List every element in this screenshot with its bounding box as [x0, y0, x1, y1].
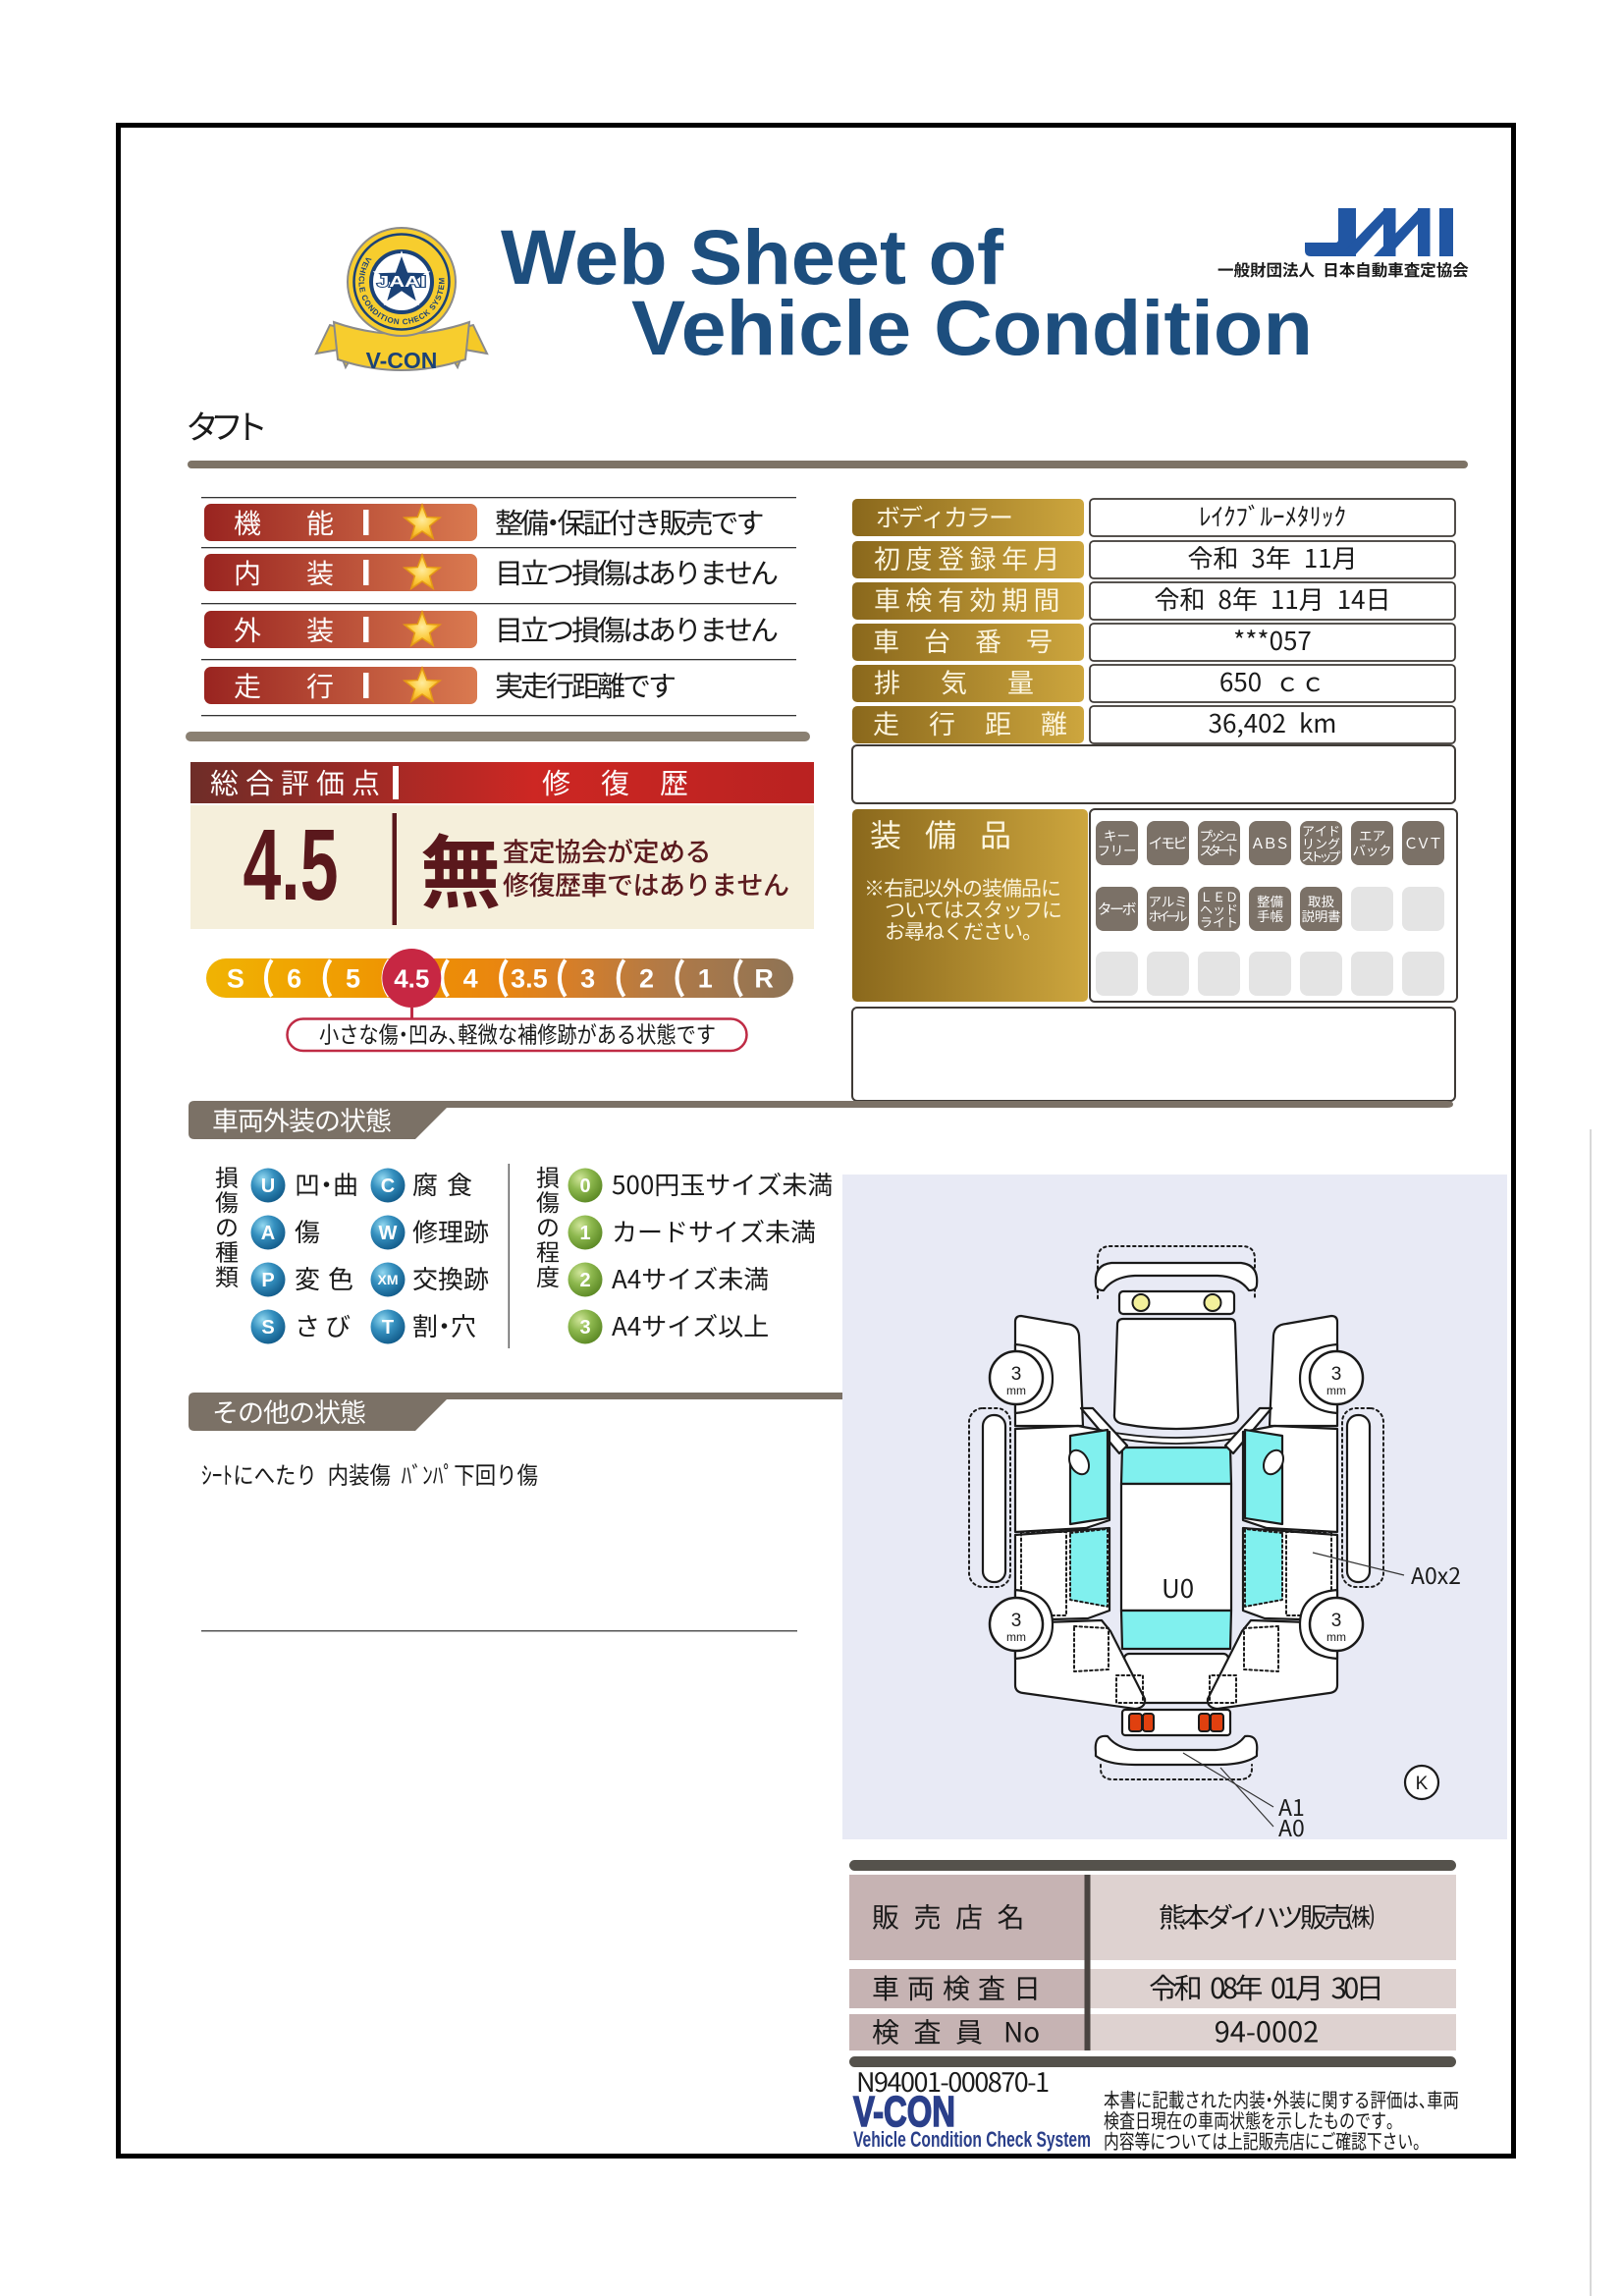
svg-text:1: 1 [698, 964, 713, 994]
svg-text:mm: mm [1006, 1630, 1026, 1644]
svg-text:2: 2 [579, 1270, 590, 1291]
svg-text:mm: mm [1326, 1384, 1346, 1397]
svg-text:R: R [754, 964, 774, 994]
svg-text:mm: mm [1006, 1384, 1026, 1397]
svg-text:Vehicle Condition: Vehicle Condition [631, 284, 1313, 371]
svg-text:3: 3 [580, 964, 595, 994]
svg-text:C: C [381, 1175, 395, 1197]
svg-text:P: P [261, 1270, 274, 1291]
svg-text:XM: XM [378, 1272, 399, 1287]
svg-text:A: A [261, 1223, 275, 1244]
svg-text:3: 3 [1011, 1364, 1022, 1385]
svg-text:S: S [261, 1317, 274, 1339]
svg-text:6: 6 [287, 964, 301, 994]
svg-text:4.5: 4.5 [394, 964, 429, 994]
svg-text:Vehicle Condition Check System: Vehicle Condition Check System [853, 2127, 1091, 2152]
svg-text:0: 0 [579, 1175, 590, 1197]
svg-text:W: W [379, 1223, 398, 1244]
svg-text:mm: mm [1326, 1630, 1346, 1644]
svg-text:V-CON: V-CON [366, 348, 438, 373]
svg-text:3: 3 [1331, 1364, 1342, 1385]
svg-text:T: T [382, 1317, 394, 1339]
svg-text:JAAI: JAAI [377, 274, 426, 291]
svg-text:K: K [1416, 1774, 1429, 1794]
svg-text:4: 4 [463, 964, 478, 994]
svg-text:1: 1 [579, 1223, 590, 1244]
svg-text:3: 3 [1011, 1611, 1022, 1631]
svg-text:3: 3 [1331, 1611, 1342, 1631]
svg-text:2: 2 [639, 964, 654, 994]
svg-text:3.5: 3.5 [511, 964, 548, 994]
svg-text:4.5: 4.5 [243, 808, 339, 921]
svg-text:S: S [227, 964, 244, 994]
svg-text:5: 5 [346, 964, 360, 994]
svg-text:3: 3 [579, 1317, 590, 1339]
svg-text:U: U [261, 1175, 275, 1197]
